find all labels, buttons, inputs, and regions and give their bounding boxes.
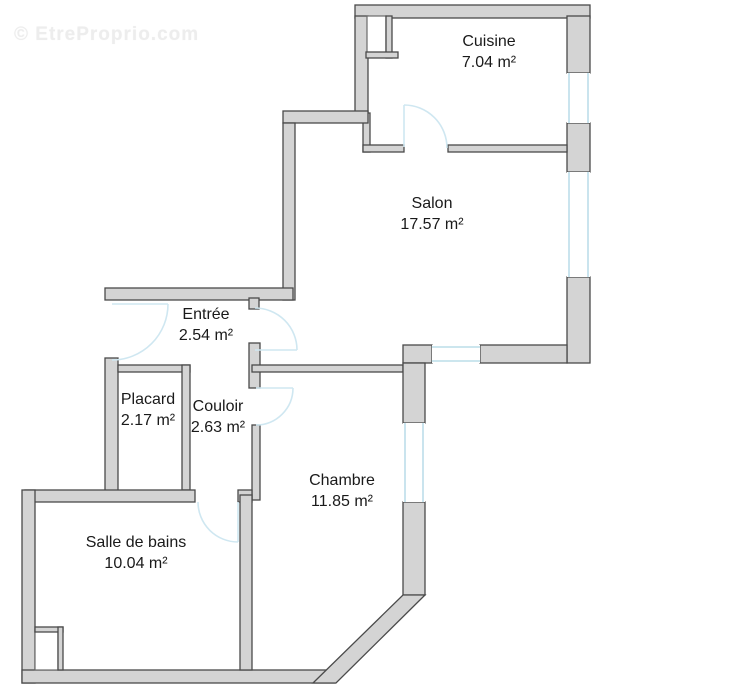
wall-segment xyxy=(118,365,190,372)
wall-segment xyxy=(252,425,260,500)
wall-segment xyxy=(567,123,590,172)
room-name: Cuisine xyxy=(462,31,516,52)
room-area: 17.57 m² xyxy=(400,214,463,235)
doors-layer xyxy=(112,105,447,542)
room-area: 7.04 m² xyxy=(462,52,516,73)
salle-de-bains-duct xyxy=(35,627,63,670)
room-name: Couloir xyxy=(191,396,245,417)
room-label-chambre: Chambre 11.85 m² xyxy=(309,470,375,512)
room-name: Salle de bains xyxy=(86,532,187,553)
room-label-cuisine: Cuisine 7.04 m² xyxy=(462,31,516,73)
salle-de-bains-door xyxy=(198,502,238,542)
wall-diagonal xyxy=(313,595,425,683)
room-area: 11.85 m² xyxy=(309,491,375,512)
wall-segment xyxy=(105,288,293,300)
room-label-entree: Entrée 2.54 m² xyxy=(179,304,233,346)
room-label-placard: Placard 2.17 m² xyxy=(121,389,175,431)
room-name: Placard xyxy=(121,389,175,410)
cuisine-window xyxy=(567,73,590,123)
wall-segment xyxy=(22,490,35,683)
wall-segment xyxy=(363,145,404,152)
wall-segment xyxy=(403,502,425,595)
wall-segment xyxy=(25,490,195,502)
windows-layer xyxy=(403,73,590,502)
room-area: 2.17 m² xyxy=(121,410,175,431)
wall-segment xyxy=(355,16,368,116)
wall-segment xyxy=(182,365,190,490)
room-name: Chambre xyxy=(309,470,375,491)
chambre-window xyxy=(403,423,425,502)
salon-door xyxy=(255,308,297,350)
walls-layer xyxy=(22,5,590,683)
wall-segment xyxy=(403,345,432,363)
chambre-door xyxy=(256,388,293,425)
room-label-couloir: Couloir 2.63 m² xyxy=(191,396,245,438)
wall-segment xyxy=(448,145,567,152)
wall-segment xyxy=(567,277,590,363)
wall-segment xyxy=(105,358,118,495)
wall-segment xyxy=(403,363,425,423)
room-label-salle-de-bains: Salle de bains 10.04 m² xyxy=(86,532,187,574)
wall-segment xyxy=(22,670,335,683)
floorplan: © EtreProprio.com Cuisine 7.04 m² Salon … xyxy=(0,0,734,695)
wall-segment xyxy=(567,16,590,73)
watermark: © EtreProprio.com xyxy=(14,24,199,46)
entrance-door xyxy=(112,304,168,360)
room-area: 10.04 m² xyxy=(86,553,187,574)
salon-bottom-window xyxy=(432,345,480,363)
wall-segment xyxy=(283,123,295,300)
cuisine-duct xyxy=(366,16,398,58)
wall-segment xyxy=(480,345,567,363)
room-area: 2.63 m² xyxy=(191,417,245,438)
wall-segment xyxy=(283,111,368,123)
wall-segment xyxy=(252,365,403,372)
room-name: Salon xyxy=(400,193,463,214)
room-name: Entrée xyxy=(179,304,233,325)
floorplan-svg xyxy=(0,0,734,695)
room-area: 2.54 m² xyxy=(179,325,233,346)
salon-right-window xyxy=(567,172,590,277)
wall-segment xyxy=(240,495,252,670)
cuisine-door xyxy=(404,105,447,148)
room-label-salon: Salon 17.57 m² xyxy=(400,193,463,235)
